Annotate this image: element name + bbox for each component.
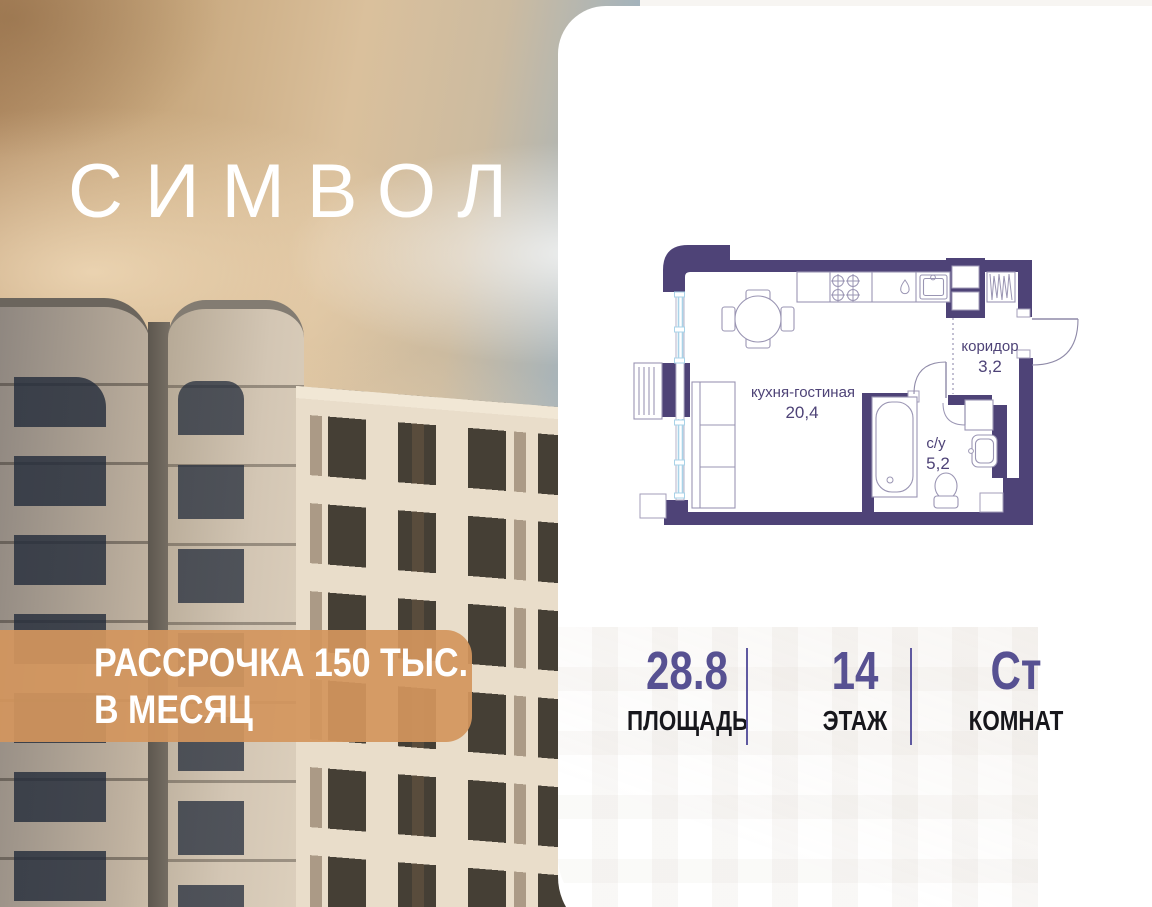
wardrobe-icon	[987, 272, 1015, 302]
wall-notch	[980, 493, 1003, 512]
info-card: кухня-гостиная 20,4 коридор 3,2 с/у 5,2 …	[558, 6, 1152, 907]
wall-notch	[640, 494, 666, 518]
room-label-corridor: коридор	[961, 338, 1018, 355]
dining-table-icon	[722, 290, 794, 348]
building-seam	[148, 322, 170, 907]
shaft	[952, 266, 979, 310]
promo-line2: В МЕСЯЦ	[94, 687, 415, 734]
washbasin-icon	[969, 435, 997, 467]
promo-text: РАССРОЧКА 150 ТЫС. В МЕСЯЦ	[94, 640, 415, 734]
window-glazing	[675, 292, 685, 500]
bathtub-icon	[872, 397, 917, 497]
room-label-kitchen: кухня-гостиная	[751, 384, 855, 401]
ac-unit-icon	[634, 363, 662, 419]
room-area-kitchen: 20,4	[785, 403, 818, 422]
entrance-door-arc	[1032, 319, 1078, 365]
building-tower-left	[0, 298, 150, 907]
room-label-bathroom: с/у	[926, 435, 946, 452]
brand-title: СИМВОЛ	[0, 148, 575, 235]
toilet-icon	[934, 473, 958, 508]
listing-card[interactable]: СИМВОЛ РАССРОЧКА 150 ТЫС. В МЕСЯЦ	[0, 0, 1152, 907]
sofa-icon	[692, 382, 735, 508]
floor-plan: кухня-гостиная 20,4 коридор 3,2 с/у 5,2	[620, 230, 1080, 525]
faded-photo-hint	[558, 627, 1038, 907]
door-jamb	[1017, 309, 1030, 317]
door-jamb	[1017, 350, 1030, 358]
sink-icon	[920, 275, 947, 299]
promo-banner: РАССРОЧКА 150 ТЫС. В МЕСЯЦ	[0, 630, 472, 742]
room-area-bathroom: 5,2	[926, 454, 950, 473]
room-area-corridor: 3,2	[978, 357, 1002, 376]
promo-line1: РАССРОЧКА 150 ТЫС.	[94, 640, 415, 687]
building-tower-mid	[168, 300, 304, 907]
